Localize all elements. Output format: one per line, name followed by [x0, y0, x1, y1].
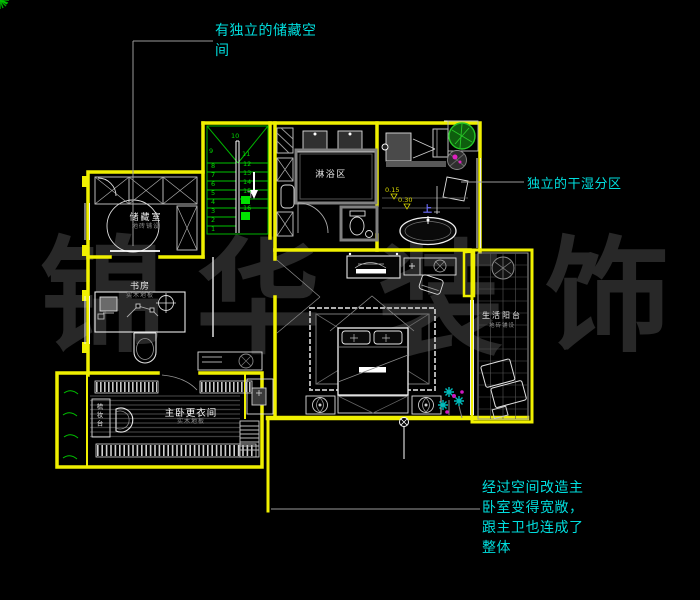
annotation-storage: 有独立的储藏空间 [215, 21, 319, 61]
stair-number: 7 [211, 172, 215, 179]
stair-number: 16 [243, 205, 251, 212]
stair-number: 9 [209, 148, 213, 155]
study-room [95, 292, 185, 363]
annotation-dry-wet: 独立的干湿分区 [527, 175, 622, 195]
plant [61, 446, 79, 464]
shower-area-label: 淋浴区 [315, 167, 347, 180]
storage-room-finish: 地砖铺设 [132, 221, 160, 230]
vanity-label: 梳妆台 [94, 403, 104, 437]
stair-number: 8 [211, 163, 215, 170]
floorplan-canvas: 锦 华 装 饰 [0, 0, 700, 600]
floorplan-drawing [0, 0, 700, 600]
corner-plant [438, 387, 464, 418]
balcony [478, 253, 529, 419]
stair-number: 1 [211, 226, 215, 233]
stair-number: 15 [243, 188, 251, 195]
stair-number: 12 [243, 161, 251, 168]
stair-number: 2 [211, 217, 215, 224]
plant [62, 381, 80, 399]
balcony-label: 生活阳台 [482, 310, 522, 321]
level-mark-2: 0.30 [398, 196, 412, 204]
shower-room [277, 128, 377, 240]
stair-number: 4 [211, 199, 215, 206]
level-mark-1: 0.15 [385, 186, 399, 194]
balcony-finish: 地砖铺设 [489, 321, 515, 329]
stair-number: 10 [231, 133, 239, 140]
leader-lines [133, 41, 524, 509]
stair-number: 14 [243, 179, 251, 186]
left-plants [0, 0, 9, 9]
dressing-room-finish: 实木地板 [177, 416, 205, 425]
annotation-master: 经过空间改造主卧室变得宽敞，跟主卫也连成了整体 [482, 478, 586, 558]
stair-number: 5 [211, 190, 215, 197]
study-room-finish: 实木地板 [126, 290, 154, 299]
plant [62, 425, 80, 443]
bath-up-label: 上 [423, 202, 432, 215]
dressing-room [90, 381, 259, 457]
stair-number: 11 [242, 151, 250, 158]
stair-number: 3 [211, 208, 215, 215]
master-bedroom [277, 253, 456, 414]
stair-number: 13 [243, 170, 251, 177]
staircase [207, 126, 268, 234]
master-bath [382, 121, 478, 245]
plant [61, 403, 79, 421]
stair-number: 6 [211, 181, 215, 188]
